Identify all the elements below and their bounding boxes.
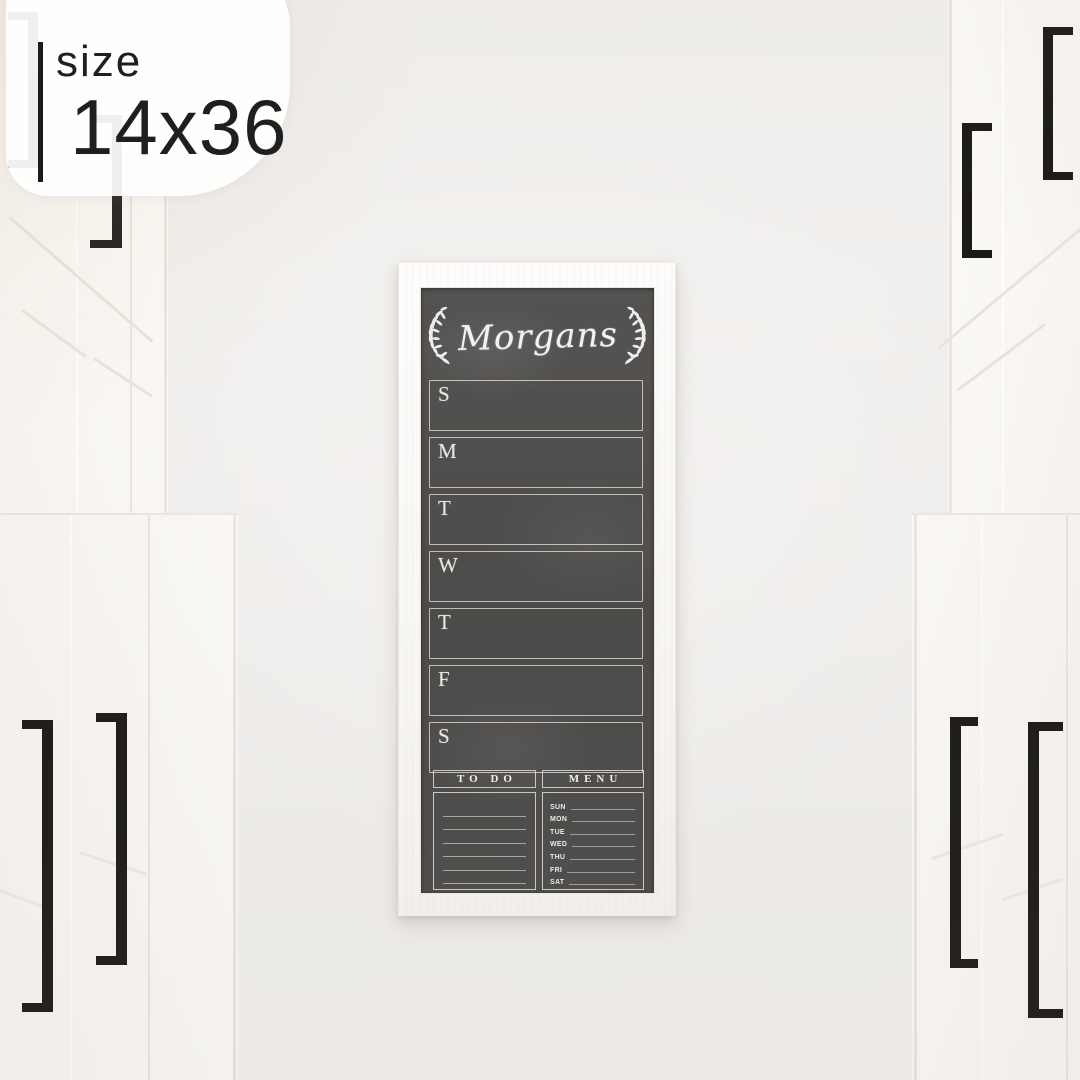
menu-line — [570, 859, 635, 860]
menu-row: SUN — [550, 799, 637, 812]
planner-frame: Morgans — [398, 262, 676, 916]
day-rows: S M T W T F S — [429, 380, 643, 779]
cabinet-panel-line — [70, 515, 72, 1080]
menu-day-label: MON — [550, 816, 567, 824]
menu-day-label: FRI — [550, 867, 562, 875]
todo-line — [443, 803, 526, 817]
menu-row: FRI — [550, 862, 637, 875]
todo-line — [443, 884, 526, 898]
laurel-left-icon — [421, 300, 453, 374]
menu-row: WED — [550, 837, 637, 850]
menu-line — [572, 821, 635, 822]
todo-section: TO DO — [433, 770, 536, 890]
cabinet-door-edge — [949, 0, 952, 515]
cabinet-handle — [950, 717, 978, 968]
day-row: M — [429, 437, 643, 488]
day-row: T — [429, 494, 643, 545]
menu-day-label: THU — [550, 854, 565, 862]
menu-line — [569, 884, 635, 885]
cabinet-panel-line — [148, 515, 150, 1080]
cabinet-door-edge — [914, 515, 917, 1080]
todo-line — [443, 871, 526, 885]
day-letter: T — [430, 609, 642, 634]
product-photo-scene: size 14x36 — [0, 0, 1080, 1080]
cabinet-panel-line — [1066, 515, 1068, 1080]
todo-line — [443, 857, 526, 871]
day-row: S — [429, 380, 643, 431]
badge-accent-bar — [38, 42, 43, 182]
day-letter: W — [430, 552, 642, 577]
cabinet-handle — [96, 713, 127, 965]
menu-day-label: SUN — [550, 804, 566, 812]
menu-day-label: TUE — [550, 829, 565, 837]
day-letter: T — [430, 495, 642, 520]
day-row: F — [429, 665, 643, 716]
menu-header: MENU — [542, 770, 644, 788]
menu-line — [570, 834, 635, 835]
menu-row: THU — [550, 849, 637, 862]
cabinet-seam — [0, 513, 238, 515]
cabinet-panel-line — [1002, 0, 1004, 515]
menu-line — [572, 846, 635, 847]
cabinet-panel-line — [981, 515, 983, 1080]
day-letter: M — [430, 438, 642, 463]
menu-line — [567, 872, 635, 873]
menu-day-label: SAT — [550, 879, 564, 887]
cabinet-seam — [912, 513, 1080, 515]
laurel-right-icon — [622, 300, 654, 374]
cabinet-door-edge — [233, 515, 236, 1080]
todo-line — [443, 844, 526, 858]
day-letter: S — [430, 381, 642, 406]
family-name: Morgans — [457, 315, 618, 359]
board-header: Morgans — [421, 296, 654, 378]
size-value: 14x36 — [70, 88, 288, 166]
day-letter: F — [430, 666, 642, 691]
cabinet-handle — [1043, 27, 1073, 180]
menu-list-box: SUN MON TUE WED THU FRI SAT — [542, 792, 644, 890]
menu-row: SAT — [550, 875, 637, 888]
cabinet-handle — [22, 720, 53, 1012]
menu-section: MENU SUN MON TUE WED THU FRI SAT — [542, 770, 644, 890]
todo-header: TO DO — [433, 770, 536, 788]
cabinet-handle — [962, 123, 992, 258]
todo-line — [443, 817, 526, 831]
menu-line — [571, 809, 635, 810]
cabinet-handle — [1028, 722, 1063, 1018]
todo-line — [443, 830, 526, 844]
chalkboard: Morgans — [421, 288, 654, 893]
todo-list-box — [433, 792, 536, 890]
menu-day-label: WED — [550, 841, 567, 849]
day-row: T — [429, 608, 643, 659]
day-letter: S — [430, 723, 642, 748]
size-badge: size 14x36 — [6, 0, 290, 196]
menu-row: MON — [550, 812, 637, 825]
menu-row: TUE — [550, 824, 637, 837]
bottom-section: TO DO MENU SUN MON — [433, 770, 644, 890]
day-row: W — [429, 551, 643, 602]
day-row: S — [429, 722, 643, 773]
size-label: size — [56, 40, 142, 84]
